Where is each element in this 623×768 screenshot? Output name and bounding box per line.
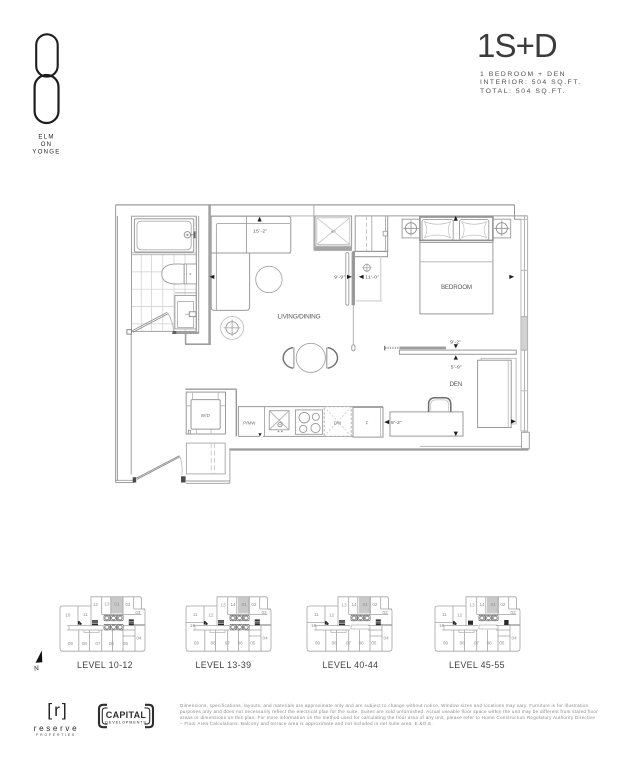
svg-text:03: 03 (261, 610, 267, 615)
svg-text:12: 12 (457, 613, 463, 618)
svg-text:9'-2": 9'-2" (391, 420, 402, 426)
svg-text:03: 03 (382, 610, 388, 615)
svg-text:05: 05 (499, 640, 505, 645)
svg-text:13: 13 (470, 602, 476, 607)
svg-text:05: 05 (123, 641, 129, 646)
svg-text:HP: HP (331, 230, 337, 234)
svg-text:04: 04 (384, 635, 390, 640)
svg-text:ON: ON (41, 142, 53, 148)
svg-text:5'-9": 5'-9" (451, 364, 462, 370)
svg-text:11: 11 (314, 612, 319, 617)
svg-text:LIVING/DINING: LIVING/DINING (278, 313, 321, 320)
svg-text:01: 01 (363, 602, 369, 607)
svg-text:01: 01 (491, 602, 497, 607)
svg-text:11: 11 (193, 612, 198, 617)
svg-text:11: 11 (442, 612, 447, 617)
svg-text:06: 06 (109, 641, 115, 646)
svg-text:06: 06 (359, 640, 365, 645)
svg-text:02: 02 (251, 602, 257, 607)
svg-text:09: 09 (443, 640, 449, 645)
svg-text:12: 12 (208, 613, 214, 618)
svg-text:06: 06 (238, 640, 244, 645)
svg-text:04: 04 (136, 636, 142, 641)
svg-text:13: 13 (342, 602, 348, 607)
svg-text:DW: DW (334, 421, 342, 426)
svg-text:08: 08 (332, 640, 338, 645)
svg-text:12: 12 (93, 602, 99, 607)
svg-text:07: 07 (95, 641, 101, 646)
svg-text:YONGE: YONGE (32, 150, 60, 156)
svg-text:03: 03 (510, 610, 516, 615)
svg-text:09: 09 (68, 641, 74, 646)
svg-text:DEN: DEN (449, 381, 462, 388)
svg-text:01: 01 (114, 602, 120, 607)
svg-text:08: 08 (460, 640, 466, 645)
svg-text:DEVELOPMENTS: DEVELOPMENTS (105, 720, 147, 725)
svg-text:13: 13 (104, 602, 110, 607)
svg-text:04: 04 (512, 635, 518, 640)
svg-text:06: 06 (487, 640, 493, 645)
svg-text:15'-2": 15'-2" (253, 229, 267, 235)
svg-text:09: 09 (194, 640, 200, 645)
svg-text:02: 02 (372, 602, 378, 607)
svg-text:08: 08 (211, 640, 217, 645)
svg-text:10: 10 (439, 623, 445, 628)
svg-text:10: 10 (65, 613, 71, 618)
svg-text:07: 07 (346, 640, 352, 645)
svg-text:08: 08 (82, 641, 88, 646)
svg-text:09: 09 (315, 640, 321, 645)
svg-text:02: 02 (125, 602, 131, 607)
svg-text:14: 14 (351, 602, 357, 607)
svg-text:07: 07 (225, 640, 231, 645)
svg-text:CAPITAL: CAPITAL (106, 710, 147, 720)
svg-text:04: 04 (263, 635, 269, 640)
svg-text:07: 07 (474, 640, 480, 645)
svg-text:14: 14 (479, 602, 485, 607)
svg-text:10: 10 (311, 623, 317, 628)
svg-text:P/MW: P/MW (243, 420, 256, 425)
svg-text:05: 05 (250, 640, 256, 645)
svg-text:F: F (366, 421, 369, 426)
svg-text:13: 13 (221, 602, 227, 607)
svg-text:11'-0": 11'-0" (365, 274, 379, 280)
svg-text:9'-9": 9'-9" (334, 274, 345, 280)
svg-text:05: 05 (371, 640, 377, 645)
svg-text:03: 03 (135, 610, 141, 615)
svg-text:ELM: ELM (38, 135, 54, 141)
svg-text:BEDROOM: BEDROOM (441, 284, 472, 291)
svg-text:10: 10 (190, 623, 196, 628)
svg-text:11: 11 (83, 612, 88, 617)
svg-text:02: 02 (500, 602, 506, 607)
svg-text:W/D: W/D (201, 413, 210, 418)
svg-text:14: 14 (230, 602, 236, 607)
svg-text:N: N (33, 665, 40, 673)
svg-text:01: 01 (242, 602, 248, 607)
svg-text:12: 12 (329, 613, 335, 618)
